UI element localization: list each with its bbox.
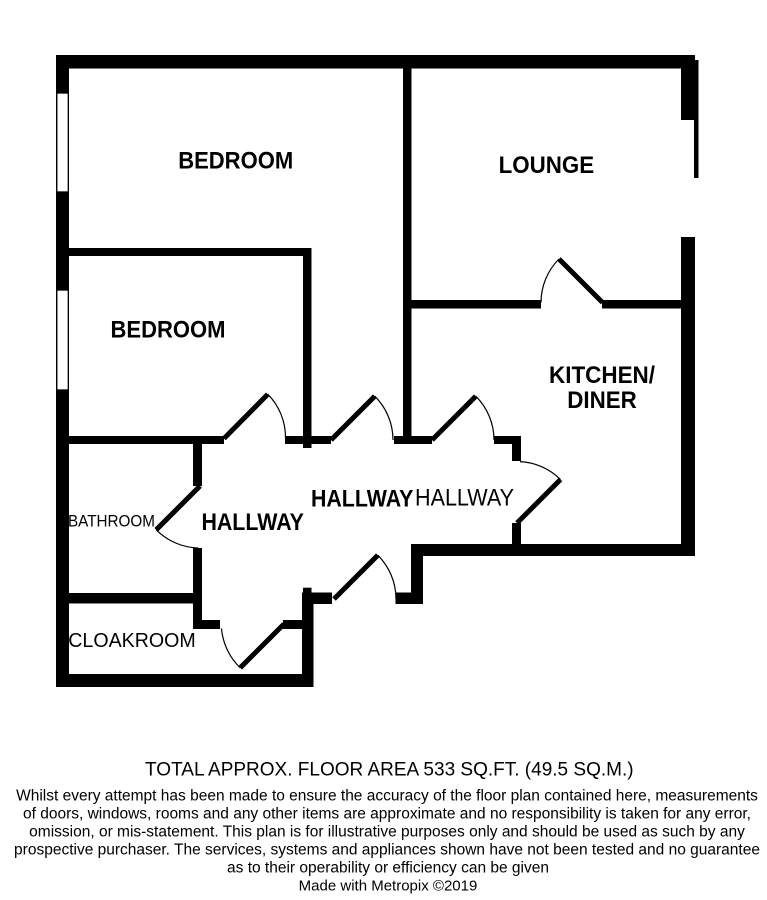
svg-text:LOUNGE: LOUNGE [499, 152, 595, 179]
svg-text:omission, or mis-statement. Th: omission, or mis-statement. This plan is… [29, 824, 745, 841]
svg-text:DINER: DINER [567, 387, 637, 414]
svg-text:KITCHEN/: KITCHEN/ [549, 362, 655, 389]
svg-text:as to their operability or eff: as to their operability or efficiency ca… [227, 860, 549, 877]
svg-text:of doors, windows, rooms and a: of doors, windows, rooms and any other i… [23, 806, 751, 823]
svg-text:prospective purchaser. The ser: prospective purchaser. The services, sys… [14, 842, 760, 859]
svg-text:BATHROOM: BATHROOM [68, 511, 155, 530]
svg-text:BEDROOM: BEDROOM [178, 148, 293, 175]
svg-text:HALLWAY: HALLWAY [201, 509, 304, 536]
svg-text:Made with Metropix ©2019: Made with Metropix ©2019 [299, 878, 478, 895]
svg-text:HALLWAY: HALLWAY [415, 485, 514, 512]
svg-text:HALLWAY: HALLWAY [311, 485, 414, 512]
svg-text:Whilst every attempt has been: Whilst every attempt has been made to en… [16, 788, 758, 805]
svg-text:TOTAL APPROX. FLOOR AREA 533 S: TOTAL APPROX. FLOOR AREA 533 SQ.FT. (49.… [145, 760, 634, 781]
svg-text:CLOAKROOM: CLOAKROOM [68, 630, 196, 652]
svg-text:BEDROOM: BEDROOM [111, 316, 226, 343]
